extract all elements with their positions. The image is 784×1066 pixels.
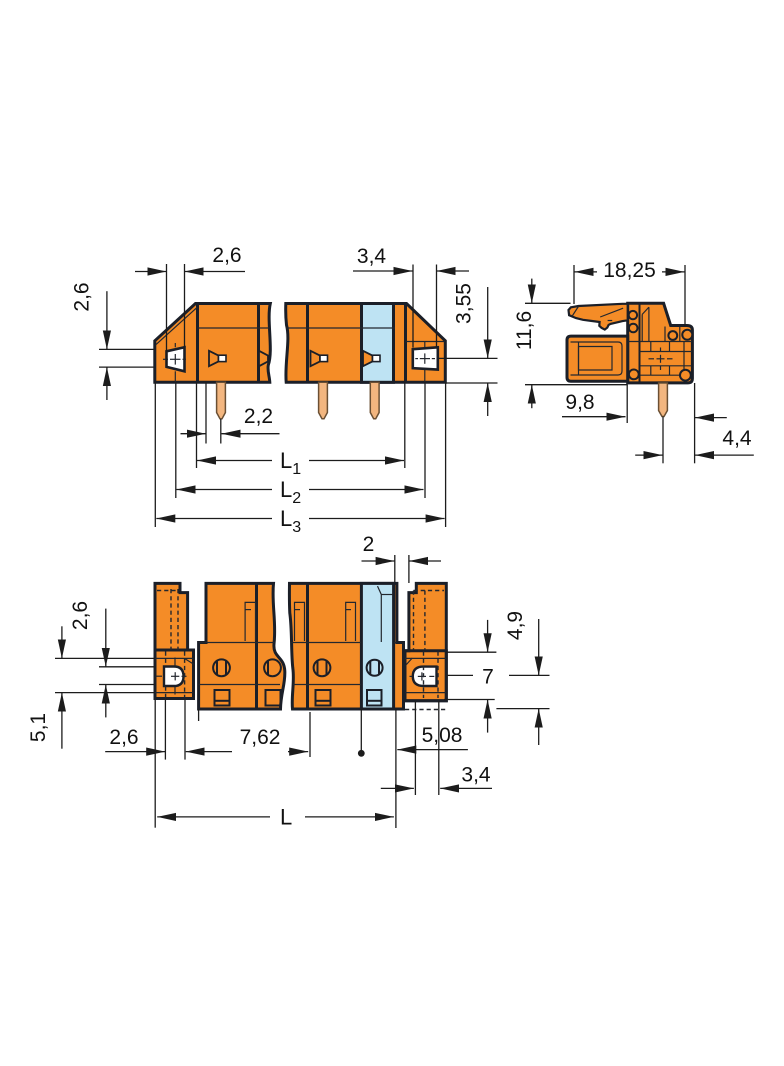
svg-text:5,1: 5,1: [27, 713, 50, 742]
svg-text:2,2: 2,2: [244, 405, 273, 428]
svg-text:2,6: 2,6: [69, 601, 92, 630]
svg-text:L1: L1: [280, 448, 301, 478]
svg-text:7,62: 7,62: [240, 726, 281, 749]
svg-text:2: 2: [363, 533, 375, 556]
svg-text:L2: L2: [280, 477, 301, 507]
svg-text:4,4: 4,4: [722, 427, 752, 450]
svg-text:3,4: 3,4: [461, 764, 491, 787]
svg-text:5,08: 5,08: [422, 724, 463, 747]
svg-text:3,4: 3,4: [357, 245, 387, 268]
svg-text:9,8: 9,8: [565, 391, 594, 414]
svg-text:L: L: [280, 805, 292, 830]
svg-text:4,9: 4,9: [504, 611, 527, 640]
svg-text:2,6: 2,6: [109, 726, 138, 749]
svg-text:18,25: 18,25: [603, 259, 656, 282]
svg-text:7: 7: [482, 666, 494, 689]
svg-text:3,55: 3,55: [453, 283, 476, 324]
svg-text:2,6: 2,6: [71, 282, 94, 311]
svg-text:11,6: 11,6: [513, 311, 536, 350]
svg-text:2,6: 2,6: [212, 244, 241, 267]
svg-text:L3: L3: [280, 506, 301, 536]
